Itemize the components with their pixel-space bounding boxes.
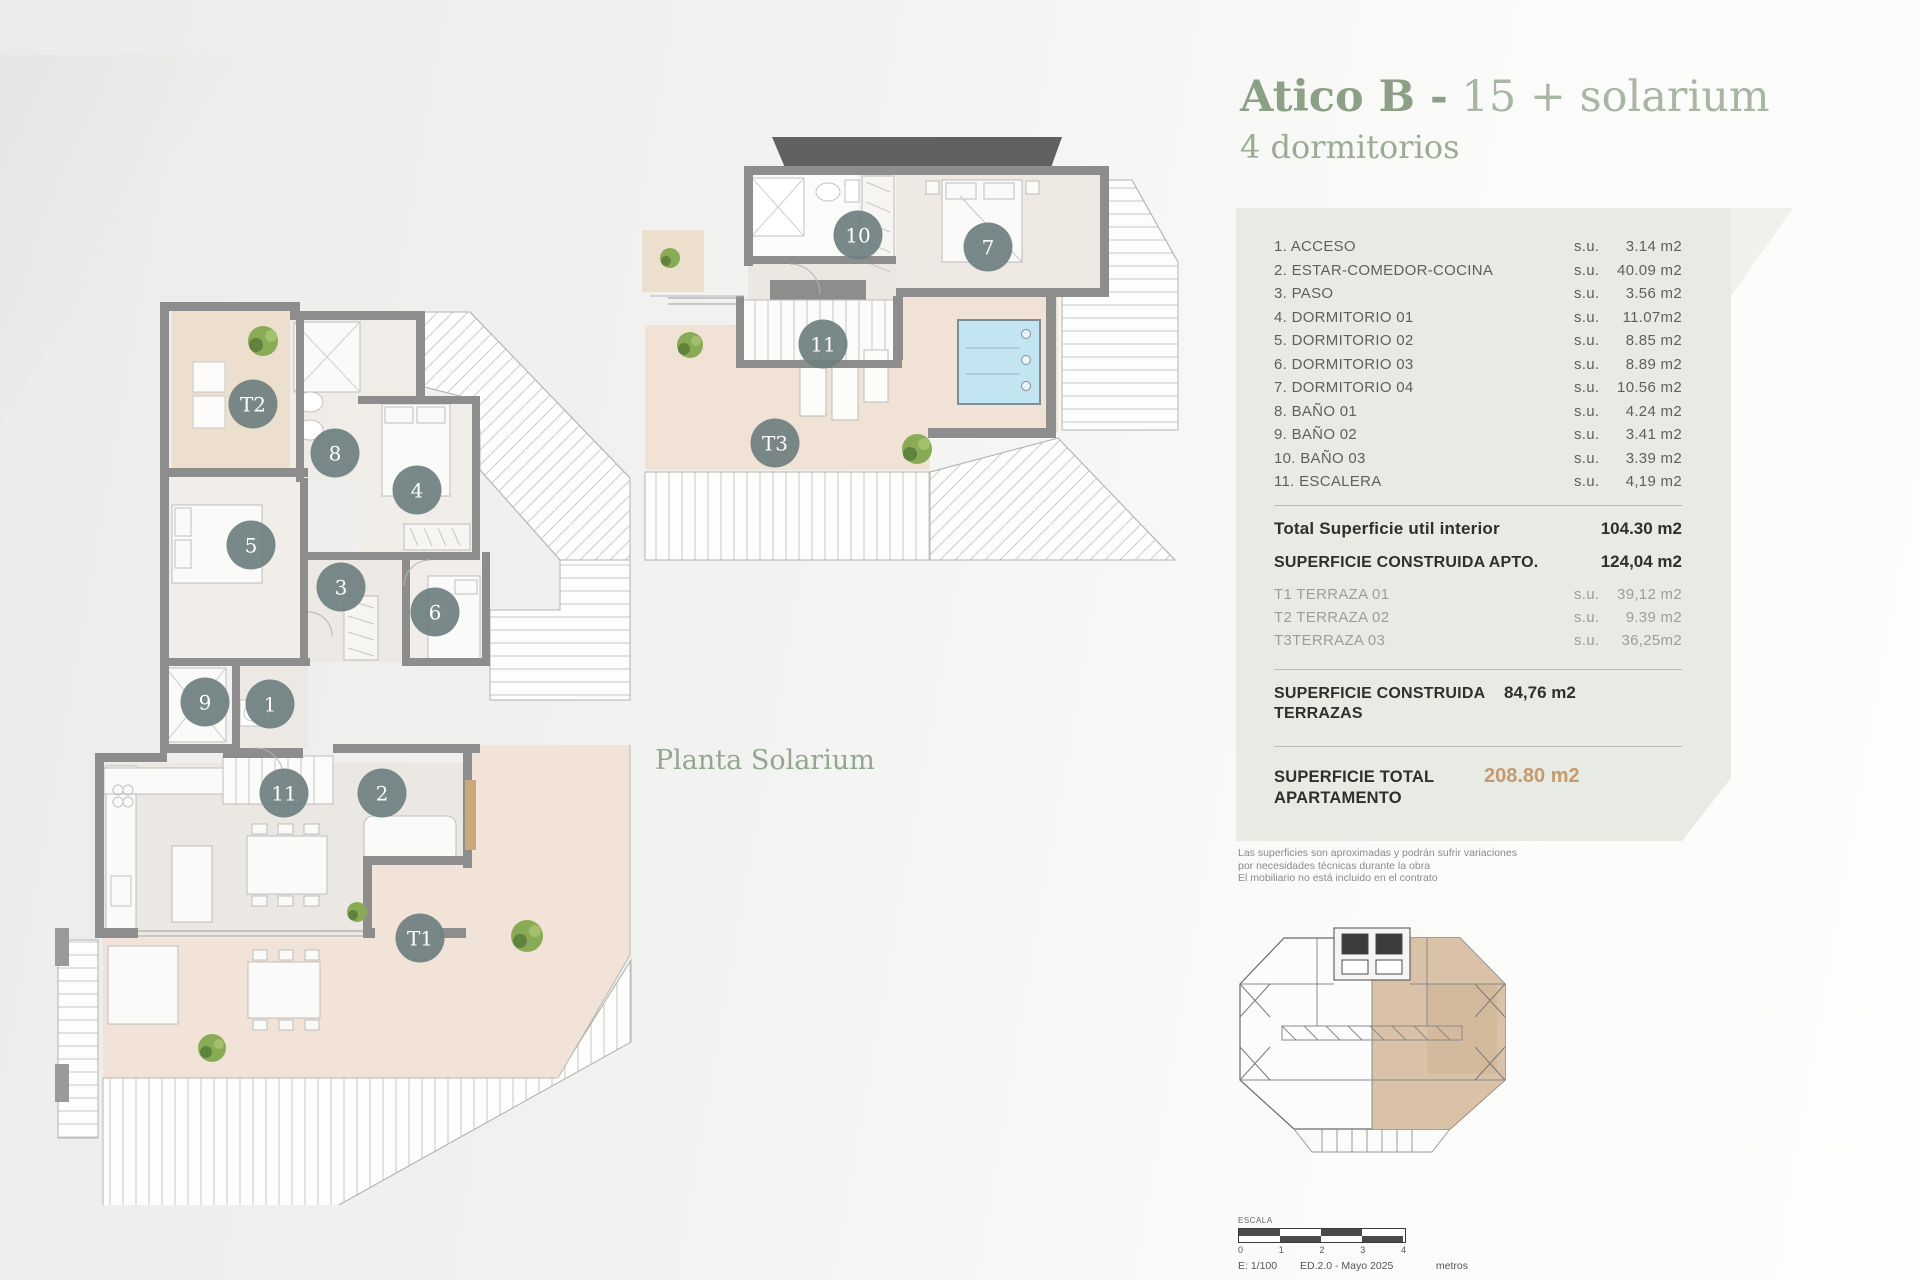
room-row: 8. BAÑO 01s.u.4.24 m2 — [1274, 403, 1682, 427]
room-row-label: 8. BAÑO 01 — [1274, 403, 1574, 420]
escala-label: ESCALA — [1238, 1216, 1468, 1225]
solarium-floor-plan — [635, 130, 1185, 755]
terrace-row-value: 39,12 m2 — [1604, 586, 1682, 603]
wall-stub — [55, 928, 69, 966]
room-row-value: 3.14 m2 — [1604, 238, 1682, 255]
room-row-label: 6. DORMITORIO 03 — [1274, 356, 1574, 373]
terrace-row-su: s.u. — [1574, 586, 1604, 603]
disclaimer-line: por necesidades técnicas durante la obra — [1238, 860, 1517, 873]
room-row: 6. DORMITORIO 03s.u.8.89 m2 — [1274, 356, 1682, 380]
room-row-value: 3.41 m2 — [1604, 426, 1682, 443]
room-row: 10. BAÑO 03s.u.3.39 m2 — [1274, 450, 1682, 474]
scale-ratio: E: 1/100 — [1238, 1260, 1300, 1272]
room-row: 7. DORMITORIO 04s.u.10.56 m2 — [1274, 379, 1682, 403]
room-row: 11. ESCALERAs.u.4,19 m2 — [1274, 473, 1682, 497]
room-row-label: 10. BAÑO 03 — [1274, 450, 1574, 467]
terrace-row-label: T2 TERRAZA 02 — [1274, 609, 1574, 626]
scale-bar-graphic — [1238, 1228, 1406, 1243]
lower-deck — [1294, 1129, 1450, 1152]
room-row-value: 40.09 m2 — [1604, 262, 1682, 279]
brochure-page: { "title": { "main": "Atico B -", "sub":… — [0, 0, 1920, 1280]
scale-unit: metros — [1418, 1260, 1468, 1272]
scale-ticks: 01234 — [1238, 1245, 1406, 1255]
terrace-surface-list: T1 TERRAZA 01s.u.39,12 m2T2 TERRAZA 02s.… — [1274, 586, 1682, 655]
construida-apto-value: 124,04 m2 — [1601, 552, 1682, 572]
terrace-row: T1 TERRAZA 01s.u.39,12 m2 — [1274, 586, 1682, 609]
terrace-row-label: T1 TERRAZA 01 — [1274, 586, 1574, 603]
room-row-su: s.u. — [1574, 426, 1604, 443]
scale-tick: 3 — [1360, 1245, 1365, 1255]
total-util-label: Total Superficie util interior — [1274, 519, 1601, 539]
room-row-label: 11. ESCALERA — [1274, 473, 1574, 490]
room-row: 3. PASOs.u.3.56 m2 — [1274, 285, 1682, 309]
total-apartamento-label: SUPERFICIE TOTAL APARTAMENTO — [1274, 767, 1484, 809]
room-row-label: 7. DORMITORIO 04 — [1274, 379, 1574, 396]
terrace-row-value: 9.39 m2 — [1604, 609, 1682, 626]
room-row: 5. DORMITORIO 02s.u.8.85 m2 — [1274, 332, 1682, 356]
divider — [1274, 669, 1682, 670]
room-row-label: 5. DORMITORIO 02 — [1274, 332, 1574, 349]
room-row-value: 3.39 m2 — [1604, 450, 1682, 467]
total-util-value: 104.30 m2 — [1601, 519, 1682, 539]
room-row: 1. ACCESOs.u.3.14 m2 — [1274, 238, 1682, 262]
room-row-su: s.u. — [1574, 309, 1604, 326]
scale-tick: 4 — [1401, 1245, 1406, 1255]
room-row-value: 3.56 m2 — [1604, 285, 1682, 302]
title-unit: Atico B - — [1240, 72, 1448, 122]
room-row: 9. BAÑO 02s.u.3.41 m2 — [1274, 426, 1682, 450]
scale-bar: ESCALA 01234 E: 1/100 ED.2.0 - Mayo 2025… — [1238, 1216, 1468, 1272]
core — [1334, 928, 1410, 980]
construida-apto-row: SUPERFICIE CONSTRUIDA APTO. 124,04 m2 — [1274, 552, 1682, 572]
terrace-row: T2 TERRAZA 02s.u.9.39 m2 — [1274, 609, 1682, 632]
room-row: 4. DORMITORIO 01s.u.11.07m2 — [1274, 309, 1682, 333]
room-row-su: s.u. — [1574, 473, 1604, 490]
terrace-row: T3TERRAZA 03s.u.36,25m2 — [1274, 632, 1682, 655]
room-row-label: 3. PASO — [1274, 285, 1574, 302]
scale-tick: 2 — [1319, 1245, 1324, 1255]
terrace-row-label: T3TERRAZA 03 — [1274, 632, 1574, 649]
construida-terrazas-row: SUPERFICIE CONSTRUIDA TERRAZAS 84,76 m2 — [1274, 683, 1682, 724]
total-apartamento-value: 208.80 m2 — [1484, 765, 1580, 788]
room-row-su: s.u. — [1574, 332, 1604, 349]
building-locator-plan — [1222, 922, 1522, 1177]
decorative-panel-corner — [1731, 208, 1793, 296]
room-row-su: s.u. — [1574, 285, 1604, 302]
construida-apto-label: SUPERFICIE CONSTRUIDA APTO. — [1274, 554, 1601, 572]
wall-stub — [55, 1064, 69, 1102]
disclaimer: Las superficies son aproximadas y podrán… — [1238, 847, 1517, 885]
room-row: 2. ESTAR-COMEDOR-COCINAs.u.40.09 m2 — [1274, 262, 1682, 286]
room-row-su: s.u. — [1574, 238, 1604, 255]
room-row-su: s.u. — [1574, 356, 1604, 373]
total-util-row: Total Superficie util interior 104.30 m2 — [1274, 519, 1682, 539]
title-variant: 15 + solarium — [1448, 72, 1770, 122]
room-row-su: s.u. — [1574, 403, 1604, 420]
surface-data-panel: 1. ACCESOs.u.3.14 m22. ESTAR-COMEDOR-COC… — [1236, 208, 1731, 841]
divider — [1274, 505, 1682, 506]
title-bedrooms: 4 dormitorios — [1240, 128, 1770, 166]
total-apartamento-row: SUPERFICIE TOTAL APARTAMENTO 208.80 m2 — [1274, 765, 1682, 809]
construida-terrazas-value: 84,76 m2 — [1504, 683, 1576, 703]
room-row-label: 2. ESTAR-COMEDOR-COCINA — [1274, 262, 1574, 279]
edition-date: ED.2.0 - Mayo 2025 — [1300, 1260, 1418, 1272]
scale-tick: 1 — [1279, 1245, 1284, 1255]
room-surface-list: 1. ACCESOs.u.3.14 m22. ESTAR-COMEDOR-COC… — [1274, 238, 1682, 497]
room-row-label: 9. BAÑO 02 — [1274, 426, 1574, 443]
room-row-value: 10.56 m2 — [1604, 379, 1682, 396]
disclaimer-line: Las superficies son aproximadas y podrán… — [1238, 847, 1517, 860]
page-title: Atico B - 15 + solarium 4 dormitorios — [1240, 74, 1770, 166]
divider — [1274, 746, 1682, 747]
wood-door — [465, 780, 476, 850]
disclaimer-line: El mobiliario no está incluido en el con… — [1238, 872, 1517, 885]
terrace-row-su: s.u. — [1574, 609, 1604, 626]
plunge-pool — [958, 320, 1040, 404]
room-row-su: s.u. — [1574, 262, 1604, 279]
room-row-su: s.u. — [1574, 450, 1604, 467]
room-row-value: 11.07m2 — [1604, 309, 1682, 326]
solarium-caption: Planta Solarium — [655, 745, 875, 776]
room-row-value: 8.89 m2 — [1604, 356, 1682, 373]
room-row-value: 4.24 m2 — [1604, 403, 1682, 420]
terrace-row-value: 36,25m2 — [1604, 632, 1682, 649]
terrace-row-su: s.u. — [1574, 632, 1604, 649]
staircase — [223, 748, 333, 804]
construida-terrazas-label: SUPERFICIE CONSTRUIDA TERRAZAS — [1274, 684, 1504, 724]
room-row-su: s.u. — [1574, 379, 1604, 396]
main-floor-plan — [55, 265, 645, 1205]
room-row-value: 8.85 m2 — [1604, 332, 1682, 349]
room-row-label: 4. DORMITORIO 01 — [1274, 309, 1574, 326]
room-row-label: 1. ACCESO — [1274, 238, 1574, 255]
room-row-value: 4,19 m2 — [1604, 473, 1682, 490]
scale-tick: 0 — [1238, 1245, 1243, 1255]
